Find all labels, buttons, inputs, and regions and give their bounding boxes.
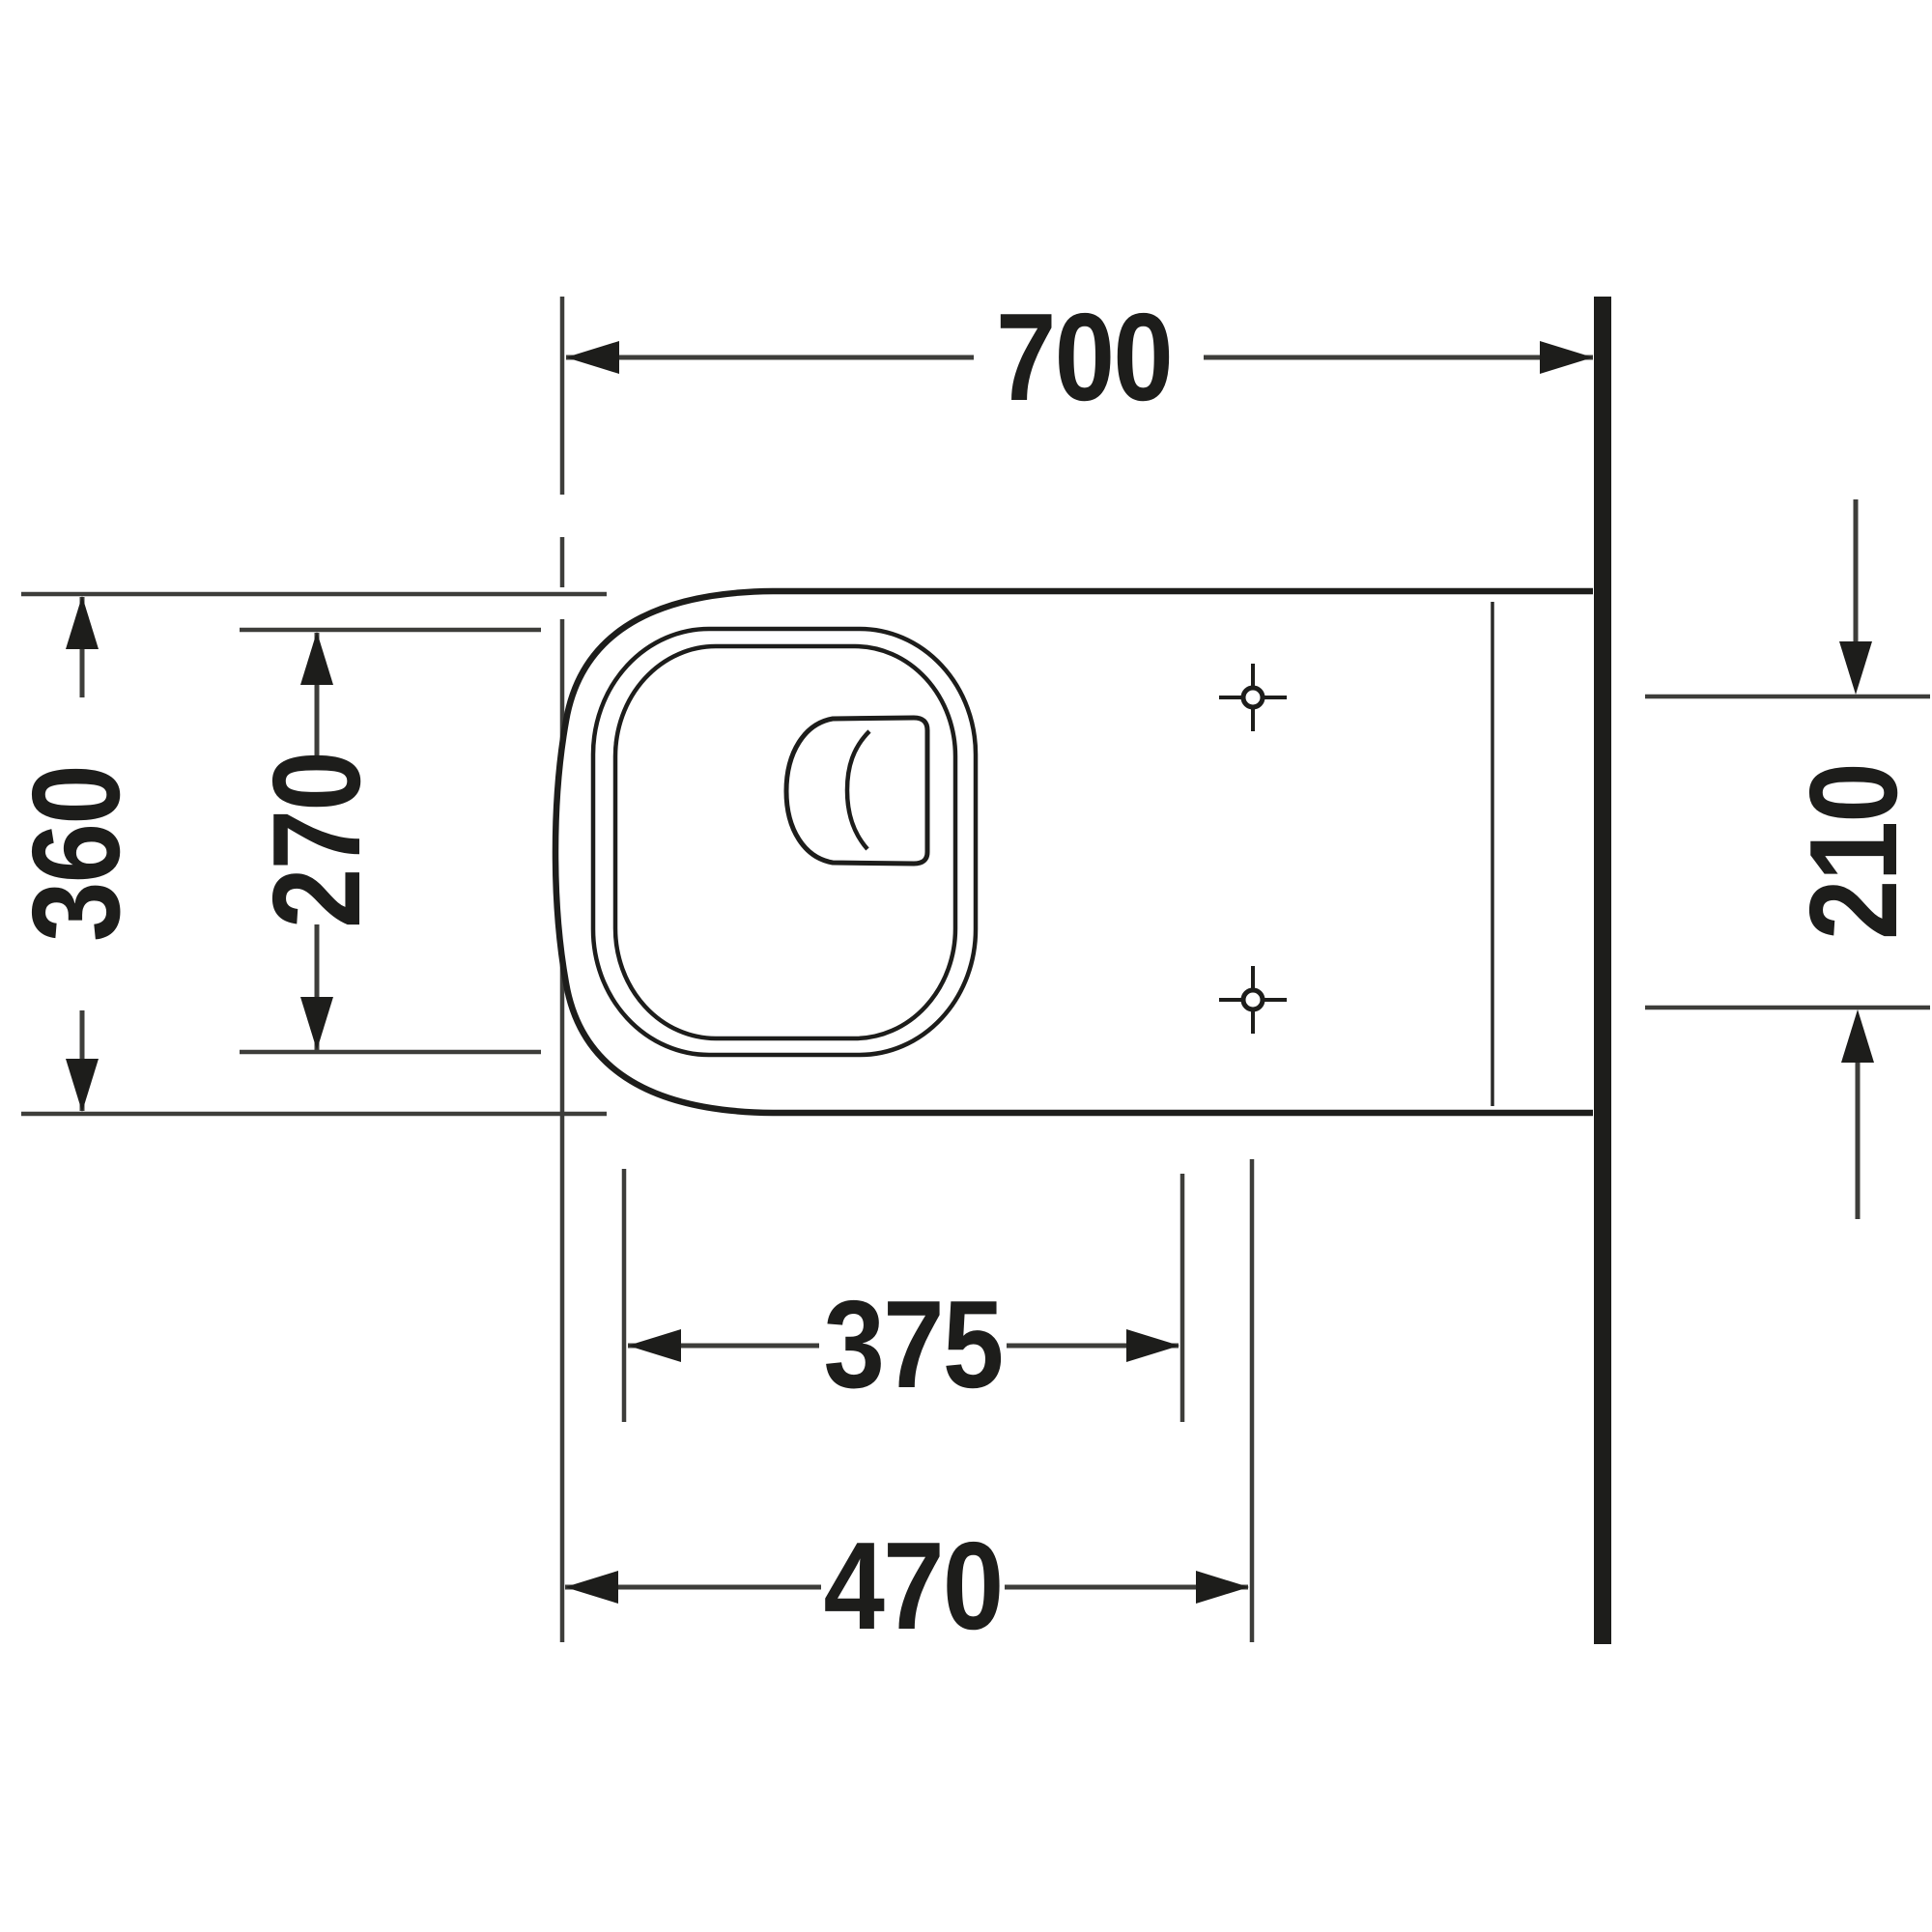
technical-drawing-canvas: 700 360 270 210 375 (0, 0, 1932, 1932)
dim-bottom-outer-label: 470 (824, 1517, 1003, 1656)
dim-top-depth-arrow-left (566, 341, 619, 374)
dim-bottom-outer-arrow-left (565, 1571, 618, 1604)
dim-bottom-inner: 375 (624, 1169, 1182, 1422)
dim-bottom-inner-label: 375 (824, 1275, 1003, 1414)
dim-bottom-inner-arrow-left (628, 1329, 681, 1362)
dim-left-inner-width-label: 270 (247, 753, 386, 928)
dim-top-depth-arrow-right (1540, 341, 1593, 374)
dim-left-inner-width-arrow-up (300, 632, 333, 685)
dim-right-hole-spacing-label: 210 (1784, 764, 1923, 940)
mounting-hole-top-circle (1243, 688, 1263, 707)
dim-top-depth: 700 (566, 288, 1593, 427)
dim-left-outer-width: 360 (7, 596, 146, 1112)
dim-left-inner-width: 270 (240, 630, 541, 1052)
wall-line (1594, 297, 1611, 1644)
dim-right-hole-spacing: 210 (1645, 499, 1930, 1219)
flush-opening-outline (786, 718, 927, 864)
dim-left-outer-width-arrow-down (66, 1059, 99, 1112)
dim-left-outer-width-arrow-up (66, 596, 99, 649)
dim-left-inner-width-arrow-down (300, 997, 333, 1050)
mounting-hole-bottom-circle (1243, 990, 1263, 1009)
dim-bottom-outer-arrow-right (1196, 1571, 1249, 1604)
dim-bottom-inner-arrow-right (1126, 1329, 1179, 1362)
dim-left-outer-width-label: 360 (7, 766, 146, 942)
toilet-plan-drawing: 700 360 270 210 375 (0, 0, 1932, 1932)
dim-right-hole-spacing-arrow-up (1841, 1009, 1874, 1063)
dim-top-depth-label: 700 (996, 288, 1172, 427)
dim-right-hole-spacing-arrow-down (1839, 641, 1872, 695)
